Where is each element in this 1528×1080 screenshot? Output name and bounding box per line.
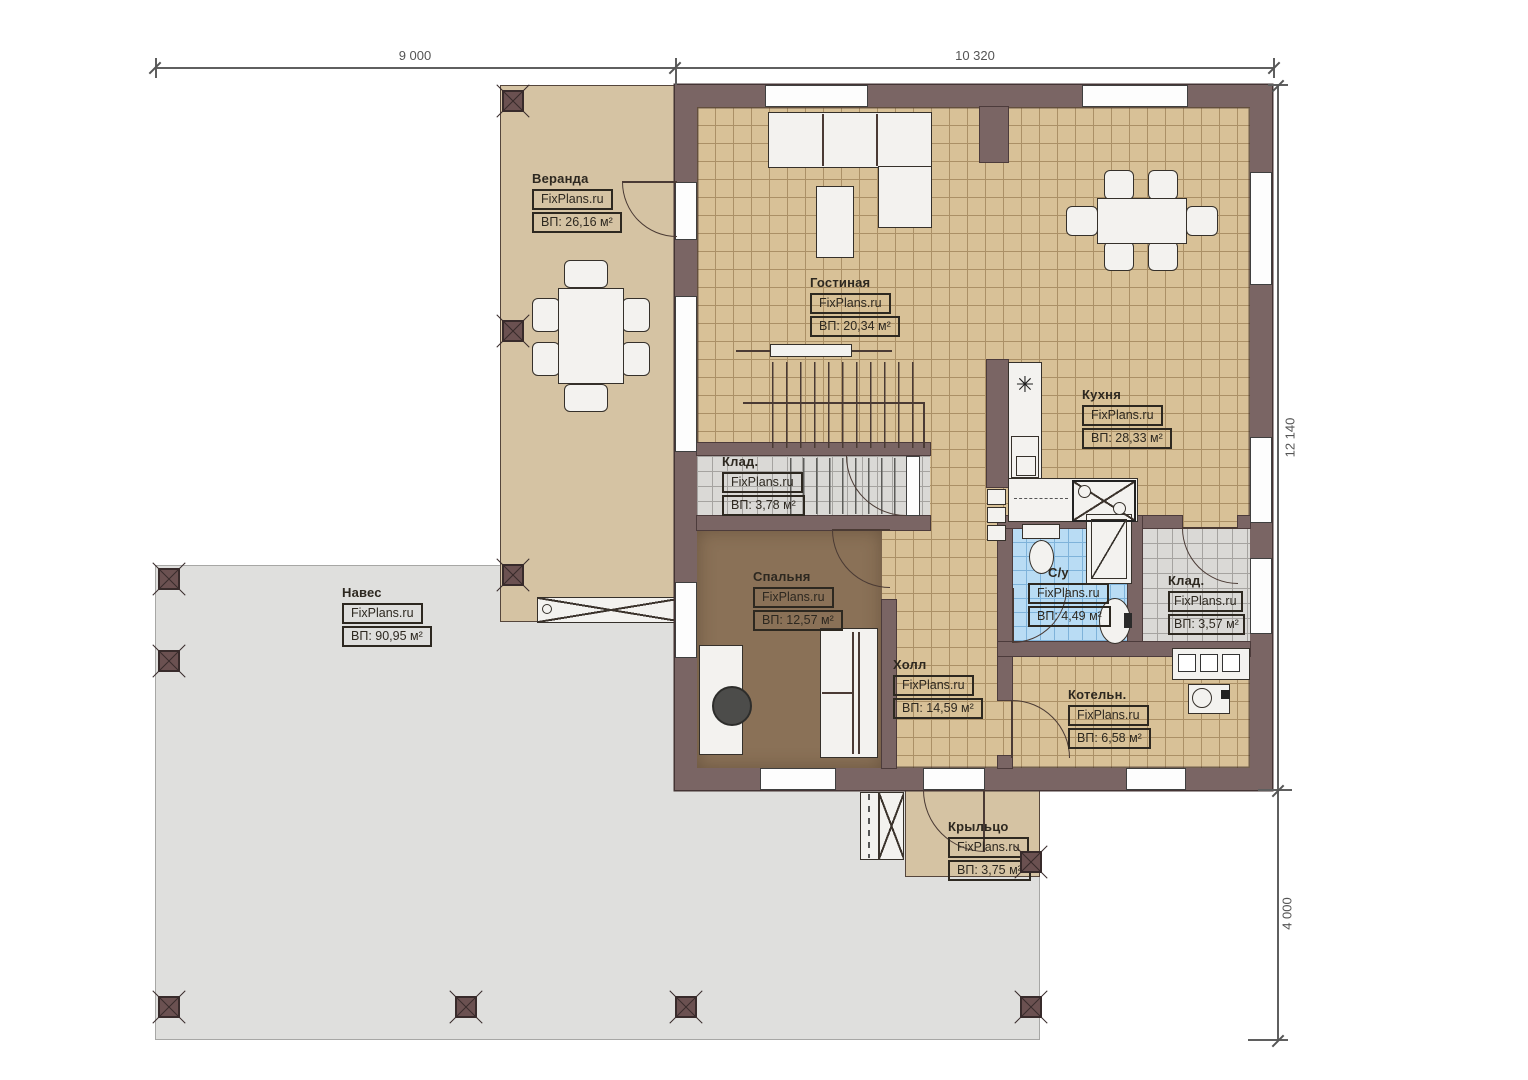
area-box: ВП: 14,59 м² [893, 698, 983, 719]
counter-dash-line [1014, 498, 1068, 499]
dim-line-right [1277, 85, 1279, 1040]
label-klad2: Клад. FixPlans.ru ВП: 3,57 м² [1168, 574, 1245, 635]
stove-burner-2 [1113, 502, 1126, 515]
area-box: ВП: 3,78 м² [722, 495, 805, 516]
area-box: ВП: 90,95 м² [342, 626, 432, 647]
veranda-chair [532, 342, 560, 376]
sink-tap [1124, 613, 1132, 628]
sofa-chaise [878, 166, 932, 228]
area-box: ВП: 20,34 м² [810, 316, 900, 337]
pergola-beam [537, 597, 685, 623]
kitchen-module-2 [987, 507, 1006, 523]
label-veranda: Веранда FixPlans.ru ВП: 26,16 м² [532, 172, 622, 233]
dim-label-12140: 12 140 [1283, 398, 1298, 478]
area-box: ВП: 6,58 м² [1068, 728, 1151, 749]
label-holl: Холл FixPlans.ru ВП: 14,59 м² [893, 658, 983, 719]
wall-hall-boiler-stub [998, 756, 1012, 768]
room-name: Крыльцо [948, 820, 1031, 834]
dim-ext-right-bottom [1248, 1039, 1288, 1041]
stair-landing-bar [770, 344, 852, 357]
brand-box: FixPlans.ru [342, 603, 423, 624]
dim-ext-top-mid [675, 58, 677, 85]
dining-chair [1148, 170, 1178, 200]
veranda-chair [622, 298, 650, 332]
dining-chair [1066, 206, 1098, 236]
dim-label-9000: 9 000 [340, 48, 490, 63]
wall-top-stub [980, 107, 1008, 162]
brand-box: FixPlans.ru [893, 675, 974, 696]
label-gostinaya: Гостиная FixPlans.ru ВП: 20,34 м² [810, 276, 900, 337]
dining-table [1097, 198, 1187, 244]
label-klad1: Клад. FixPlans.ru ВП: 3,78 м² [722, 455, 805, 516]
wall-hall-bath [998, 524, 1012, 700]
room-name: Клад. [1168, 574, 1245, 588]
area-box: ВП: 3,57 м² [1168, 614, 1245, 635]
dim-line-top [155, 67, 1275, 69]
window-bedroom-left [675, 582, 697, 658]
brand-box: FixPlans.ru [722, 472, 803, 493]
dining-chair [1186, 206, 1218, 236]
boiler-unit-3 [1222, 654, 1240, 672]
bed-line-1 [852, 632, 854, 754]
kitchen-module-1 [987, 489, 1006, 505]
room-name: Веранда [532, 172, 622, 186]
wall-klad2-top-right [1238, 516, 1250, 528]
boiler-unit-2 [1200, 654, 1218, 672]
veranda-chair [564, 260, 608, 288]
post [1020, 851, 1042, 873]
post [502, 564, 524, 586]
brand-box: FixPlans.ru [532, 189, 613, 210]
dining-chair [1148, 241, 1178, 271]
office-chair [712, 686, 752, 726]
post [502, 320, 524, 342]
stairs-upper-flight [772, 362, 925, 448]
window-kitchen-right [1250, 437, 1272, 523]
dim-label-4000: 4 000 [1280, 879, 1295, 949]
area-box: ВП: 12,57 м² [753, 610, 843, 631]
room-name: Котельн. [1068, 688, 1151, 702]
stove-burner-1 [1078, 485, 1091, 498]
post [158, 650, 180, 672]
veranda-chair [564, 384, 608, 412]
storage-door-leaf [906, 456, 920, 516]
veranda-chair [622, 342, 650, 376]
window-boiler-bottom [1126, 768, 1186, 790]
room-name: С/у [1048, 566, 1111, 580]
brand-box: FixPlans.ru [1068, 705, 1149, 726]
room-name: Гостиная [810, 276, 900, 290]
dining-chair [1104, 241, 1134, 271]
bed-divider [822, 692, 852, 694]
veranda-chair [532, 298, 560, 332]
door-opening-veranda [675, 182, 697, 240]
bed-line-2 [858, 632, 860, 754]
sofa [768, 112, 932, 168]
window-dining-right [1250, 172, 1272, 285]
post [1020, 996, 1042, 1018]
area-box: ВП: 28,33 м² [1082, 428, 1172, 449]
brand-box: FixPlans.ru [1168, 591, 1243, 612]
label-kuhnya: Кухня FixPlans.ru ВП: 28,33 м² [1082, 388, 1172, 449]
window-living-left [675, 296, 697, 452]
dim-label-10320: 10 320 [900, 48, 1050, 63]
wall-kitchen-stairs [987, 360, 1008, 487]
label-spalnya: Спальня FixPlans.ru ВП: 12,57 м² [753, 570, 843, 631]
coffee-table [816, 186, 854, 258]
boiler-unit-1 [1178, 654, 1196, 672]
sofa-cushion-line-2 [876, 114, 878, 166]
wall-storage-bottom [697, 516, 930, 530]
window-living-top [765, 85, 868, 107]
room-name: Клад. [722, 455, 805, 469]
floor-plan: ✳ [0, 0, 1528, 1080]
door-opening-entry [923, 768, 985, 790]
label-naves: Навес FixPlans.ru ВП: 90,95 м² [342, 586, 432, 647]
dim-ext-right-mid [1258, 789, 1292, 791]
porch-steps-dashes [868, 794, 870, 858]
window-dining-top [1082, 85, 1188, 107]
area-box: ВП: 4,49 м² [1028, 606, 1111, 627]
porch-steps-hatch [879, 793, 904, 859]
post [158, 568, 180, 590]
room-name: Кухня [1082, 388, 1172, 402]
brand-box: FixPlans.ru [1082, 405, 1163, 426]
room-name: Спальня [753, 570, 843, 584]
window-bedroom-bottom [760, 768, 836, 790]
sofa-cushion-line-1 [822, 114, 824, 166]
kitchen-module-3 [987, 525, 1006, 541]
stair-rail-vertical [923, 402, 925, 448]
wall-klad2-top-left [1142, 516, 1182, 528]
post [502, 90, 524, 112]
dining-chair [1104, 170, 1134, 200]
stair-rail-horizontal [743, 402, 925, 404]
room-name: Холл [893, 658, 983, 672]
brand-box: FixPlans.ru [810, 293, 891, 314]
hob-icon: ✳ [1008, 374, 1042, 396]
beam-anchor [542, 604, 552, 614]
area-box: ВП: 3,75 м² [948, 860, 1031, 881]
room-name: Навес [342, 586, 432, 600]
boiler-tank-dial [1192, 688, 1212, 708]
brand-box: FixPlans.ru [753, 587, 834, 608]
window-klad2-right [1250, 558, 1272, 634]
label-su: С/у FixPlans.ru ВП: 4,49 м² [1028, 566, 1111, 627]
brand-box: FixPlans.ru [1028, 583, 1109, 604]
post [455, 996, 477, 1018]
post [158, 996, 180, 1018]
label-kotelnaya: Котельн. FixPlans.ru ВП: 6,58 м² [1068, 688, 1151, 749]
veranda-table [558, 288, 624, 384]
fridge-inner [1016, 456, 1036, 476]
post [675, 996, 697, 1018]
boiler-switch [1221, 690, 1230, 699]
toilet-tank [1022, 524, 1060, 539]
area-box: ВП: 26,16 м² [532, 212, 622, 233]
